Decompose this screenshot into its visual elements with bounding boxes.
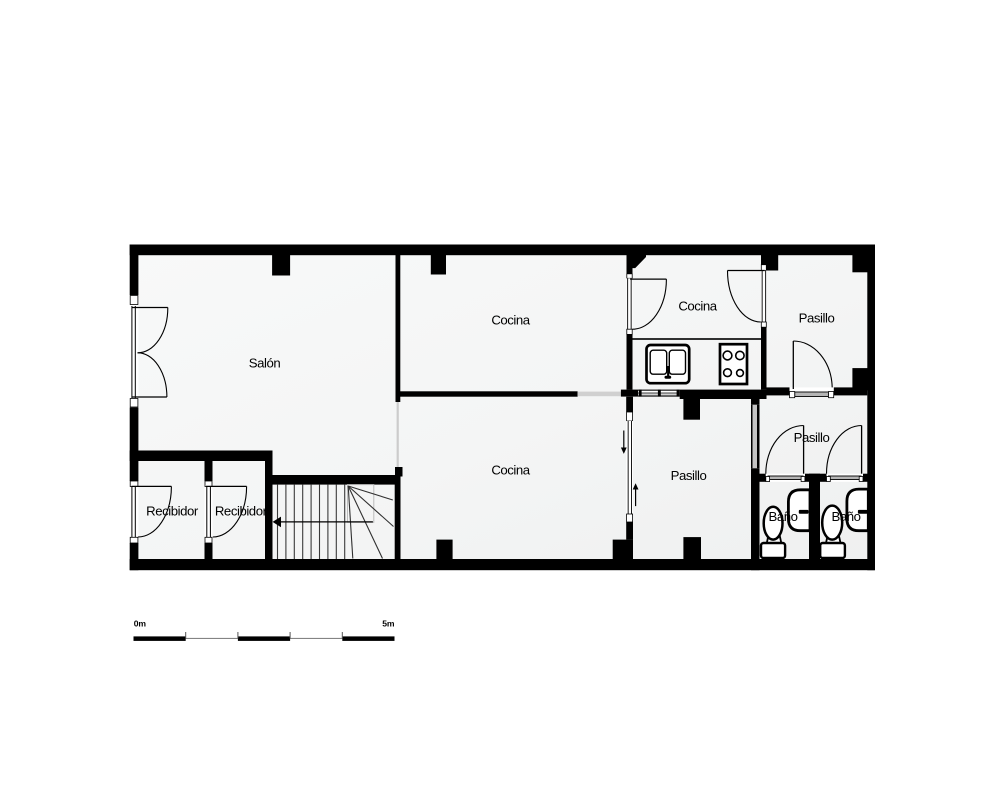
svg-text:Cocina: Cocina [491, 313, 530, 328]
svg-text:5m: 5m [382, 619, 395, 629]
svg-text:Salón: Salón [249, 356, 281, 371]
svg-text:Cocina: Cocina [491, 463, 530, 478]
svg-text:Pasillo: Pasillo [671, 468, 707, 483]
svg-text:Pasillo: Pasillo [799, 311, 835, 326]
svg-text:Baño: Baño [769, 509, 798, 524]
svg-text:Cocina: Cocina [678, 299, 717, 314]
svg-text:Pasillo: Pasillo [794, 430, 830, 445]
svg-text:Baño: Baño [832, 509, 861, 524]
svg-text:Recibidor: Recibidor [215, 504, 268, 519]
svg-text:Recibidor: Recibidor [146, 504, 199, 519]
svg-text:0m: 0m [134, 619, 147, 629]
